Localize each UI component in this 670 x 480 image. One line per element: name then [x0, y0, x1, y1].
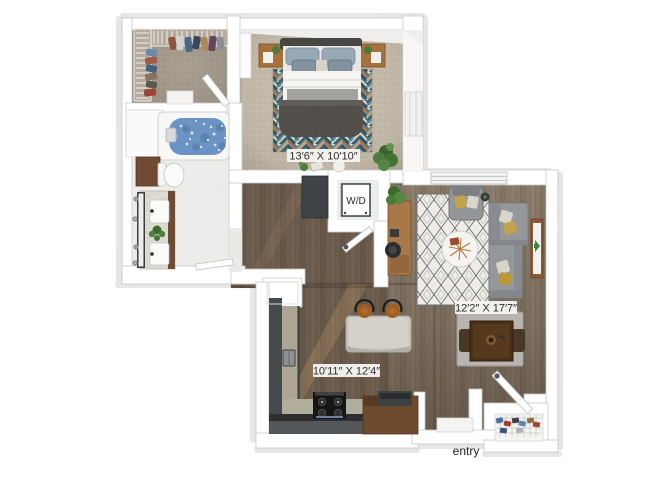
- svg-text:10′11″ X 12′4″: 10′11″ X 12′4″: [313, 366, 380, 378]
- svg-text:entry: entry: [453, 444, 480, 458]
- svg-text:W/D: W/D: [346, 196, 365, 207]
- svg-text:13′6″ X 10′10″: 13′6″ X 10′10″: [289, 151, 357, 163]
- svg-text:12′2″ X 17′7″: 12′2″ X 17′7″: [455, 303, 517, 315]
